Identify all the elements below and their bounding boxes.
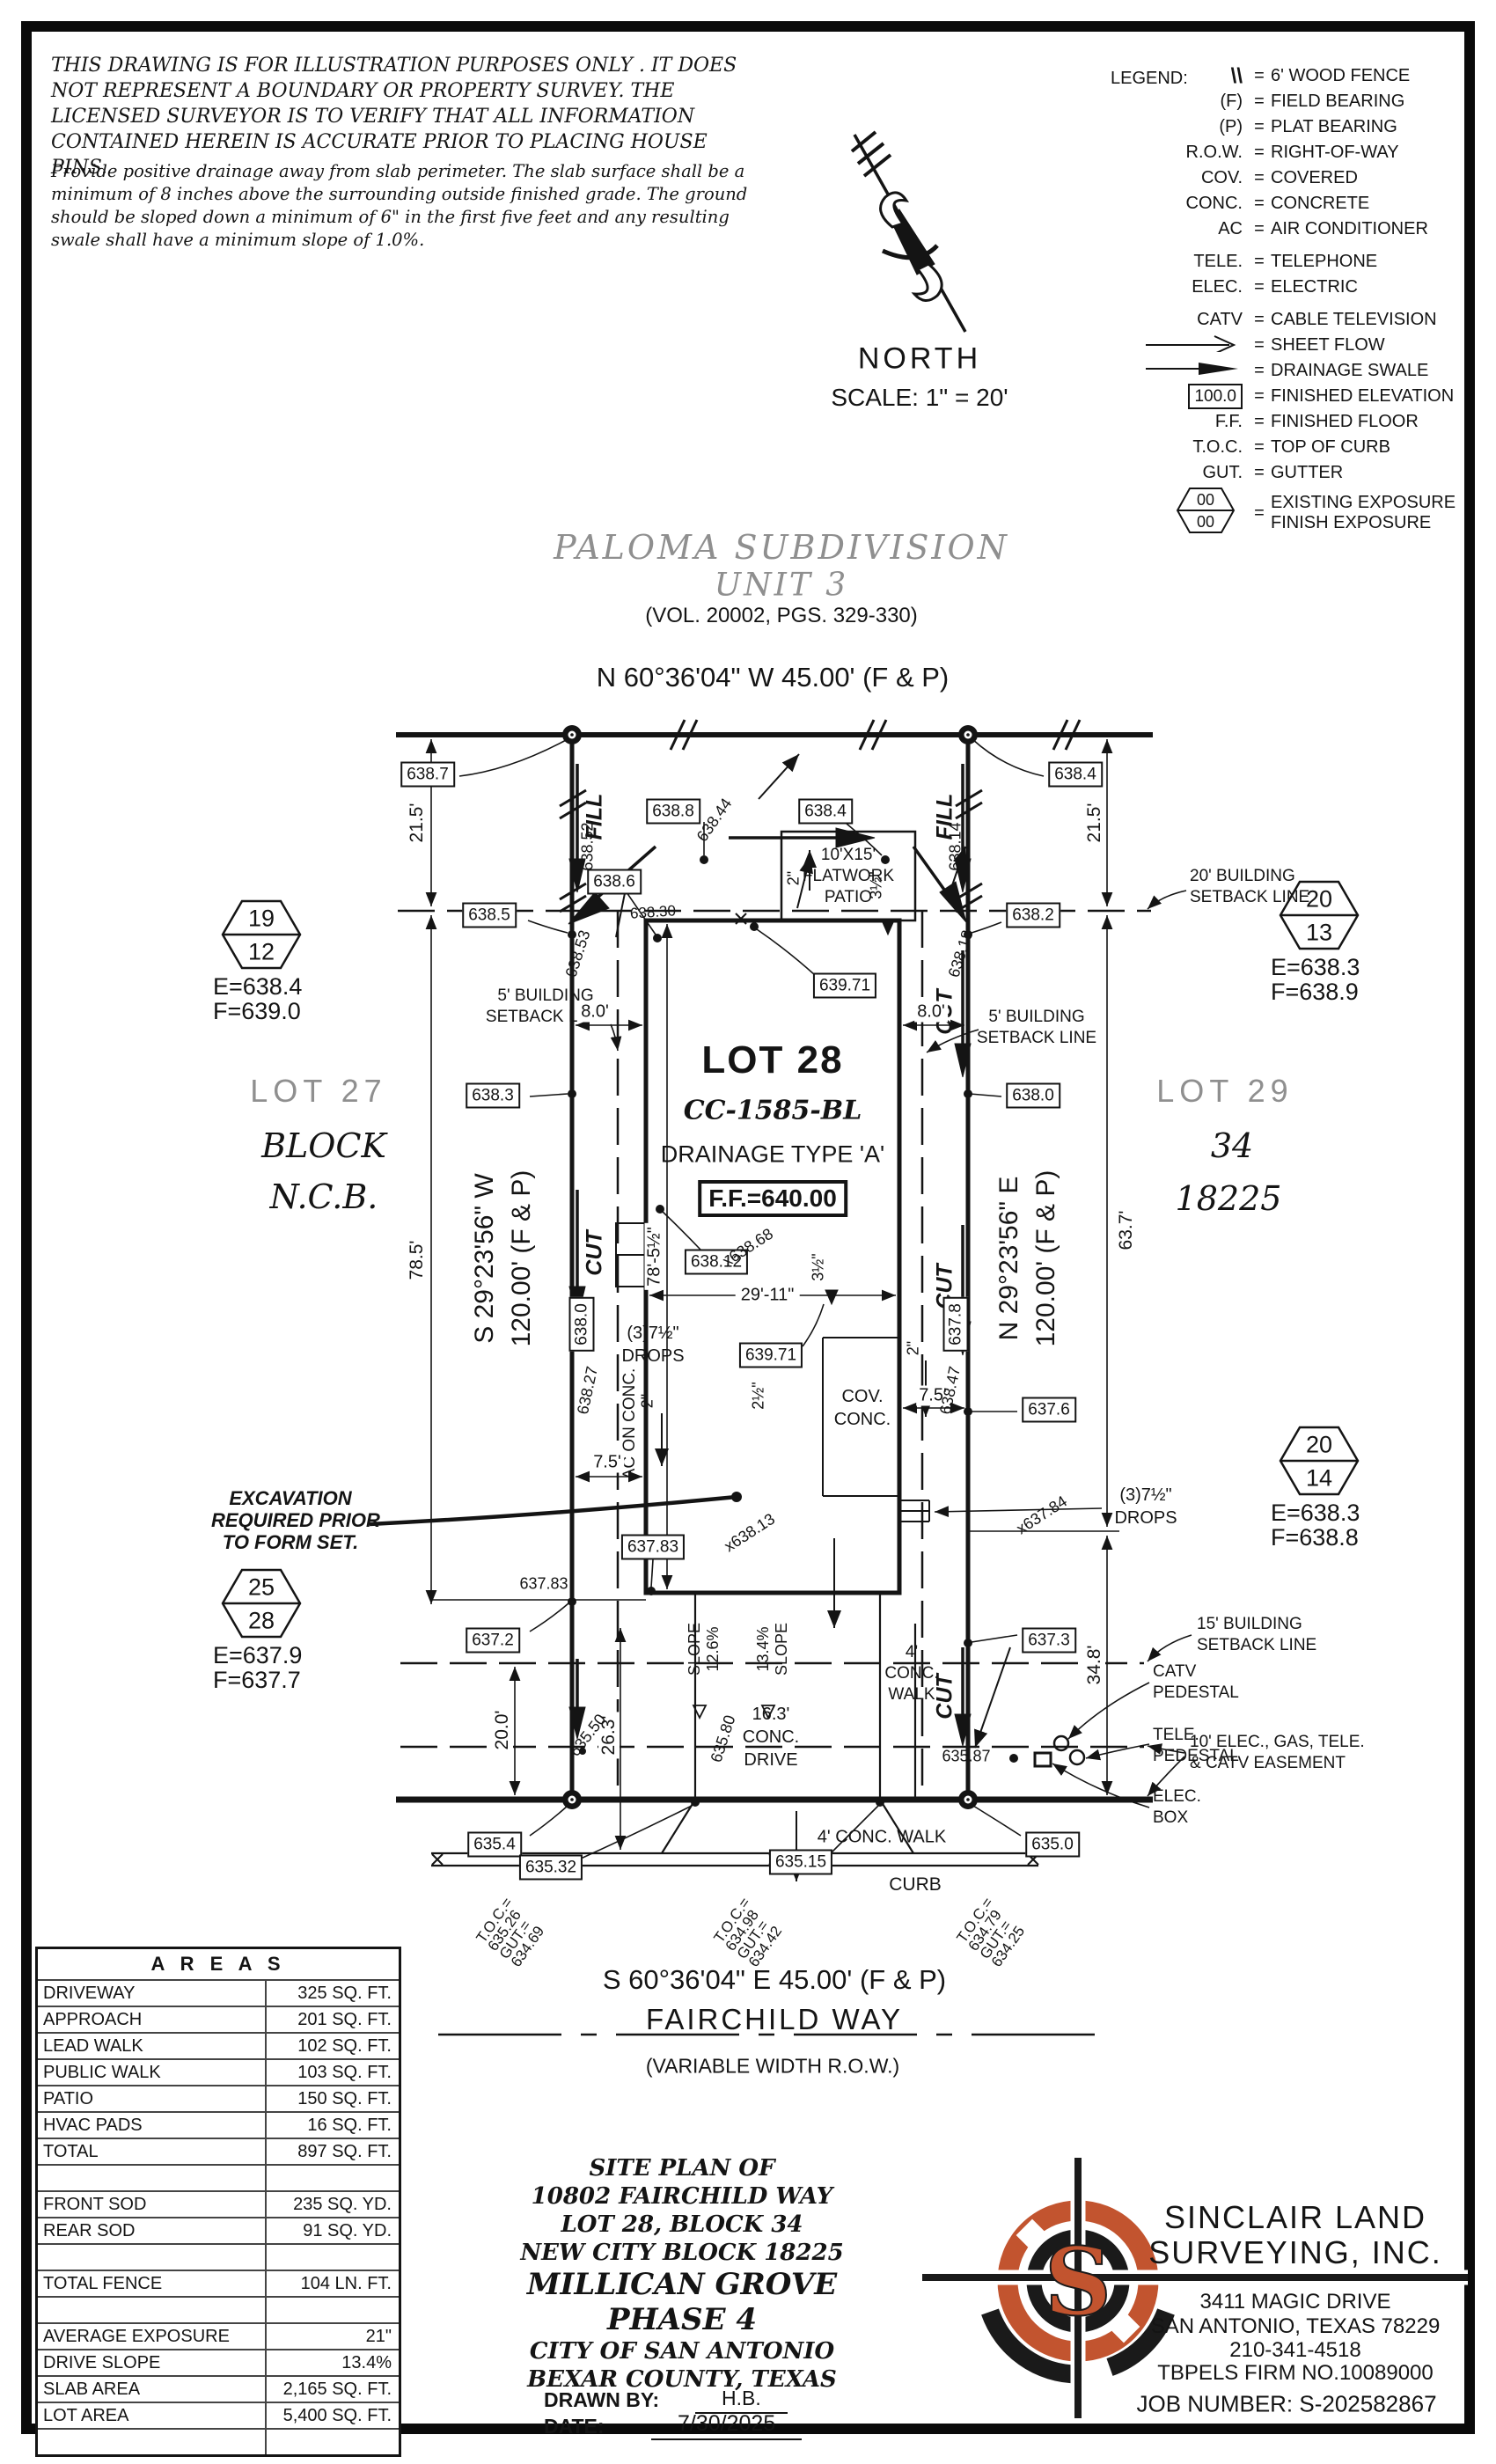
hex-value: 12 (248, 939, 275, 966)
drops-label-1: (3)7½"DROPS (621, 1322, 684, 1368)
dim-21-5-right: 21.5' (1084, 803, 1105, 843)
dim-63-7: 63.7' (1116, 1211, 1137, 1250)
areas-row (38, 2164, 399, 2190)
dim-78-5: 78.5' (407, 1237, 428, 1284)
cut-label: CUT (583, 1230, 608, 1275)
excavation-note: EXCAVATIONREQUIRED PRIORTO FORM SET. (211, 1487, 370, 1553)
lot-cc: CC-1585-BL (684, 1096, 862, 1126)
hex-value: 20 (1306, 1432, 1332, 1459)
catv-pedestal-label: CATVPEDESTAL (1153, 1661, 1239, 1704)
title-line: MILLICAN GROVE (475, 2267, 889, 2302)
date-label: DATE: (544, 2415, 605, 2438)
ncb-label-left: N.C.B. (270, 1177, 378, 1216)
cov-conc-label: COV.CONC. (834, 1385, 891, 1431)
lot-name: LOT 28 (701, 1038, 843, 1082)
spot-elev-box: 638.4 (1048, 762, 1103, 788)
spot-elev-box: 638.3 (466, 1083, 520, 1109)
dim-2a: 2" (785, 871, 803, 885)
dim-7-5-left: 7.5' (590, 1453, 624, 1473)
finished-elevation-box: 100.0 (1188, 384, 1243, 409)
spot-elev-box: 638.8 (646, 799, 700, 825)
elec-box-label: ELEC.BOX (1153, 1786, 1201, 1829)
dim-8-0-right: 8.0' (914, 1002, 948, 1023)
svg-text:S: S (1045, 2226, 1112, 2336)
spot-elev-box: 635.15 (769, 1850, 832, 1875)
legend-row: GUT.=GUTTER (1111, 460, 1463, 486)
hex-existing: E=637.9 (213, 1642, 302, 1669)
hex-existing: E=638.3 (1271, 954, 1360, 981)
dim-2c: 2" (905, 1341, 923, 1355)
areas-row: REAR SOD91 SQ. YD. (38, 2217, 399, 2243)
spot-elev-text: 638.52 (579, 822, 598, 870)
dim-3half-b: 3½" (810, 1253, 828, 1280)
drops-label-2: (3)7½"DROPS (1114, 1484, 1177, 1529)
bearing-south: S 60°36'04" E 45.00' (F & P) (603, 1964, 946, 1996)
setback-15: 15' BUILDINGSETBACK LINE (1197, 1614, 1316, 1656)
surveyor-addr-1: 3411 MAGIC DRIVE (1200, 2290, 1391, 2314)
walk-label: 4' CONC. WALK (818, 1828, 946, 1848)
spot-elev-box: 638.2 (1006, 903, 1060, 928)
areas-row: LEAD WALK102 SQ. FT. (38, 2032, 399, 2058)
areas-row (38, 2428, 399, 2454)
hex-value: 19 (248, 906, 275, 933)
legend-row: T.O.C.=TOP OF CURB (1111, 435, 1463, 460)
areas-row: PATIO150 SQ. FT. (38, 2085, 399, 2111)
hex-value: 28 (248, 1608, 275, 1635)
legend-row: 100.0 =FINISHED ELEVATION (1111, 384, 1463, 409)
drawn-by-value: H.B. (695, 2387, 788, 2414)
dim-house-depth: 78'-5½" (645, 1223, 665, 1290)
legend-row: CATV=CABLE TELEVISION (1111, 307, 1463, 333)
north-label: NORTH (858, 342, 981, 377)
sheet-flow-icon (1111, 334, 1248, 357)
legend-title: LEGEND: (1111, 69, 1188, 89)
spot-elev-box: 638.6 (587, 869, 642, 895)
legend-row: =SHEET FLOW (1111, 333, 1463, 358)
dim-2half: 2½" (750, 1382, 768, 1409)
walk-column-label: 4'CONC.WALK (884, 1642, 938, 1705)
block-number-right: 34 (1211, 1126, 1253, 1165)
legend-row: TELE.=TELEPHONE (1111, 249, 1463, 275)
legend-row: ELEC.=ELECTRIC (1111, 275, 1463, 300)
areas-row: HVAC PADS16 SQ. FT. (38, 2111, 399, 2138)
areas-row (38, 2296, 399, 2322)
curb-label: CURB (889, 1874, 942, 1896)
subdivision-vol: (VOL. 20002, PGS. 329-330) (645, 604, 918, 628)
areas-row (38, 2243, 399, 2270)
drainage-swale-icon (1111, 360, 1248, 383)
legend-row: (F)=FIELD BEARING (1111, 89, 1463, 114)
spot-elev-box: 639.71 (739, 1343, 803, 1368)
areas-row: SLAB AREA2,165 SQ. FT. (38, 2375, 399, 2402)
hex-finish: F=638.9 (1271, 979, 1359, 1006)
bearing-north: N 60°36'04" W 45.00' (F & P) (597, 662, 950, 693)
hex-finish: F=638.8 (1271, 1524, 1359, 1551)
surveyor-name-2: SURVEYING, INC. (1148, 2234, 1441, 2271)
svg-text:00: 00 (1197, 513, 1214, 531)
title-line: LOT 28, BLOCK 34 (475, 2211, 889, 2239)
areas-row: DRIVEWAY325 SQ. FT. (38, 1979, 399, 2006)
spot-elev-box: 635.0 (1025, 1832, 1080, 1858)
setback-5-right: 5' BUILDINGSETBACK LINE (977, 1007, 1096, 1049)
ncb-number-right: 18225 (1176, 1179, 1282, 1218)
surveyor-addr-2: SAN ANTONIO, TEXAS 78229 (1151, 2314, 1441, 2339)
areas-row: DRIVE SLOPE13.4% (38, 2349, 399, 2375)
hex-finish: F=639.0 (213, 998, 301, 1025)
legend-row: (P)=PLAT BEARING (1111, 114, 1463, 140)
subdivision-unit: UNIT 3 (715, 568, 848, 604)
bearing-west: S 29°23'56" W120.00' (F & P) (466, 1170, 540, 1347)
spot-elev-box: 637.83 (621, 1535, 685, 1560)
svg-text:00: 00 (1197, 491, 1214, 509)
spot-elev-box-rot: 637.8 (943, 1297, 969, 1352)
dim-2b: 2" (639, 1394, 657, 1408)
areas-row: APPROACH201 SQ. FT. (38, 2006, 399, 2032)
date-value: 7/30/2025 (651, 2411, 802, 2440)
street-row: (VARIABLE WIDTH R.O.W.) (646, 2055, 899, 2079)
title-line: 10802 FAIRCHILD WAY (475, 2182, 889, 2211)
spot-elev-text: 637.83 (519, 1575, 568, 1594)
areas-title: A R E A S (38, 1949, 399, 1979)
slope-group-2: 13.4%SLOPE (754, 1623, 791, 1676)
areas-row: PUBLIC WALK103 SQ. FT. (38, 2058, 399, 2085)
hex-value: 25 (248, 1574, 275, 1602)
adjacent-lot-right: LOT 29 (1156, 1073, 1293, 1110)
spot-elev-box: 637.2 (466, 1628, 520, 1654)
spot-elev-box: 639.71 (813, 973, 876, 999)
lot-drainage: DRAINAGE TYPE 'A' (661, 1141, 884, 1169)
surveyor-job-number: JOB NUMBER: S-202582867 (1136, 2391, 1436, 2418)
areas-row: TOTAL897 SQ. FT. (38, 2138, 399, 2164)
title-line: CITY OF SAN ANTONIO (475, 2337, 889, 2365)
tele-pedestal-label: TELE.PEDESTAL (1153, 1725, 1239, 1767)
areas-row: AVERAGE EXPOSURE21" (38, 2322, 399, 2349)
cut-label: CUT (933, 1674, 958, 1719)
setback-20: 20' BUILDING SETBACK LINE (1190, 866, 1339, 908)
hex-existing: E=638.4 (213, 973, 302, 1001)
slope-group-1: SLOPE12.6% (686, 1623, 722, 1676)
areas-row: LOT AREA5,400 SQ. FT. (38, 2402, 399, 2428)
spot-elev-box: 637.6 (1022, 1397, 1076, 1423)
scale-label: SCALE: 1" = 20' (831, 384, 1008, 412)
surveyor-name-1: SINCLAIR LAND (1164, 2199, 1426, 2236)
utility-symbols (1035, 1736, 1084, 1766)
legend-row: R.O.W.=RIGHT-OF-WAY (1111, 140, 1463, 165)
subdivision-name: PALOMA SUBDIVISION (554, 528, 1009, 567)
spot-elev-box: 637.3 (1022, 1628, 1076, 1654)
title-line: SITE PLAN OF (475, 2154, 889, 2182)
spot-elev-box: 638.4 (798, 799, 853, 825)
spot-elev-text: 635.87 (942, 1748, 990, 1766)
title-line: NEW CITY BLOCK 18225 (475, 2239, 889, 2267)
bearing-east: N 29°23'56" E120.00' (F & P) (991, 1170, 1065, 1347)
spot-elev-box: 635.4 (467, 1832, 522, 1858)
legend-row: =DRAINAGE SWALE (1111, 358, 1463, 384)
legend-row: F.F.=FINISHED FLOOR (1111, 409, 1463, 435)
spot-elev-text: 638.30 (629, 902, 676, 923)
site-plan-sheet: { "disclaimer": { "para1": "THIS DRAWING… (0, 0, 1496, 2464)
spot-elev-box: 638.7 (400, 762, 455, 788)
dim-34-8: 34.8' (1084, 1642, 1105, 1689)
legend-row: 00 00 = EXISTING EXPOSUREFINISH EXPOSURE (1111, 486, 1463, 540)
spot-elev-box-rot: 638.0 (569, 1297, 595, 1352)
street-name: FAIRCHILD WAY (646, 2003, 903, 2036)
spot-elev-text: 638.14 (947, 822, 965, 870)
hex-existing: E=638.3 (1271, 1500, 1360, 1527)
finished-floor: F.F.=640.00 (698, 1180, 847, 1217)
dim-20-0: 20.0' (492, 1707, 513, 1754)
title-line: BEXAR COUNTY, TEXAS (475, 2365, 889, 2394)
north-arrow-icon (852, 132, 965, 332)
dim-29-11: 29'-11" (736, 1286, 800, 1306)
areas-row: TOTAL FENCE104 LN. FT. (38, 2270, 399, 2296)
dim-8-0-left: 8.0' (578, 1002, 612, 1023)
drawn-by-label: DRAWN BY: (544, 2388, 659, 2412)
block-label-left: BLOCK (261, 1126, 386, 1165)
exposure-hex-icon: 00 00 (1111, 483, 1248, 543)
legend: LEGEND: \\=6' WOOD FENCE (F)=FIELD BEARI… (1111, 63, 1463, 540)
hex-value: 14 (1306, 1465, 1332, 1492)
surveyor-phone: 210-341-4518 (1229, 2338, 1360, 2363)
title-line: PHASE 4 (475, 2302, 889, 2337)
disclaimer-secondary: Provide positive drainage away from slab… (51, 160, 764, 252)
spot-elev-box: 638.0 (1006, 1083, 1060, 1109)
adjacent-lot-left: LOT 27 (250, 1073, 386, 1110)
legend-row: AC=AIR CONDITIONER (1111, 216, 1463, 242)
areas-table: A R E A S DRIVEWAY325 SQ. FT. APPROACH20… (35, 1947, 401, 2457)
spot-elev-box: 638.5 (462, 903, 517, 928)
hex-finish: F=637.7 (213, 1667, 301, 1694)
hex-value: 13 (1306, 920, 1332, 947)
dim-21-5-left: 21.5' (407, 803, 428, 843)
legend-row: CONC.=CONCRETE (1111, 191, 1463, 216)
spot-elev-box: 635.32 (519, 1855, 583, 1881)
dim-3half-a: 3½" (868, 871, 886, 898)
areas-row: FRONT SOD235 SQ. YD. (38, 2190, 399, 2217)
title-block: SITE PLAN OF 10802 FAIRCHILD WAY LOT 28,… (475, 2154, 889, 2394)
surveyor-firm: TBPELS FIRM NO.10089000 (1157, 2361, 1433, 2386)
legend-row: COV.=COVERED (1111, 165, 1463, 191)
drive-label: 16.3'CONC.DRIVE (743, 1703, 799, 1771)
